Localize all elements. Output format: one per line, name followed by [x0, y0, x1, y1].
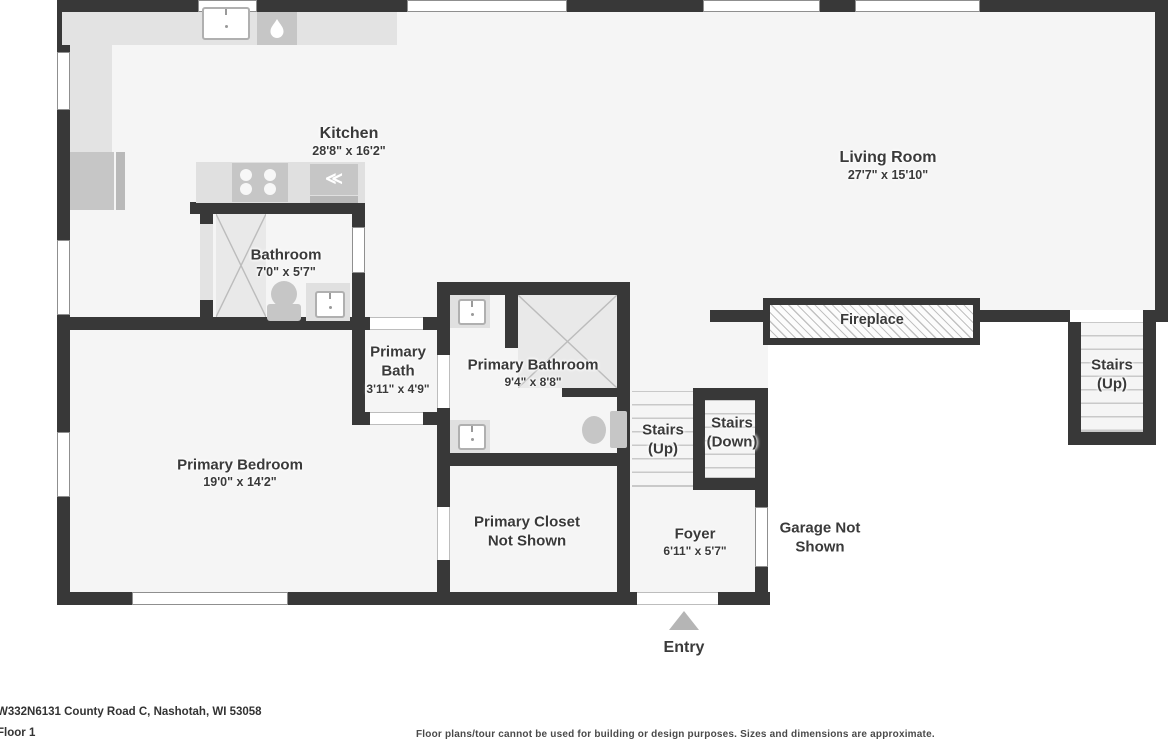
- room-label-stairs-up-right: Stairs: [1091, 357, 1133, 374]
- refrigerator-icon: [70, 152, 114, 210]
- room-label-kitchen: Kitchen: [320, 125, 379, 143]
- primary-bathroom-sink-icon: [458, 424, 486, 450]
- wall-segment: [57, 592, 132, 605]
- stairs-opening: [1070, 310, 1143, 322]
- room-label-stairs-up-mid: (Up): [648, 441, 678, 458]
- window: [57, 52, 70, 110]
- stove-icon: [232, 163, 288, 202]
- wall-segment: [1155, 0, 1168, 322]
- room-label-stairs-down: Stairs: [711, 415, 753, 432]
- wall-segment: [57, 315, 70, 432]
- wall-segment: [288, 592, 637, 605]
- primary-toilet-icon: [582, 416, 606, 444]
- primary-bathroom-sink-icon: [458, 299, 486, 325]
- wall-segment: [505, 295, 518, 348]
- door-leaf: [200, 224, 213, 300]
- room-label-primary-bathroom: Primary Bathroom: [468, 357, 599, 374]
- toilet-icon: [267, 304, 301, 321]
- window: [132, 592, 288, 605]
- entry-door-opening: [637, 592, 718, 605]
- room-label-garage: Shown: [795, 539, 844, 556]
- door-opening: [437, 355, 450, 408]
- wall-segment: [437, 560, 450, 605]
- window: [352, 227, 365, 273]
- wall-segment: [257, 0, 407, 12]
- window: [407, 0, 567, 12]
- wall-segment: [980, 0, 1168, 12]
- wall-segment: [62, 0, 198, 12]
- dishwasher-icon: [257, 12, 297, 45]
- address-text: W332N6131 County Road C, Nashotah, WI 53…: [0, 706, 262, 718]
- room-label-primary-bath: Bath: [381, 363, 414, 380]
- wall-segment: [190, 202, 365, 214]
- entry-arrow-icon: [669, 611, 699, 630]
- wall-segment: [567, 0, 703, 12]
- room-label-primary-closet: Not Shown: [488, 533, 566, 550]
- window: [703, 0, 820, 12]
- room-dims-primary-bath: 3'11" x 4'9": [366, 382, 429, 396]
- stove-burner-icon: [240, 169, 252, 181]
- room-dims-living-room: 27'7" x 15'10": [848, 168, 928, 182]
- room-label-primary-bath: Primary: [370, 344, 426, 361]
- wall-segment: [693, 388, 705, 490]
- room-label-primary-bedroom: Primary Bedroom: [177, 457, 303, 474]
- room-label-stairs-down: (Down): [707, 434, 758, 451]
- room-dims-kitchen: 28'8" x 16'2": [312, 144, 385, 158]
- wall-segment: [200, 202, 213, 224]
- room-label-primary-closet: Primary Closet: [474, 514, 580, 531]
- wall-segment: [352, 317, 365, 425]
- floor-label: Floor 1: [0, 727, 35, 739]
- wall-segment: [437, 453, 630, 466]
- wall-segment: [437, 282, 450, 355]
- kitchen-sink-icon: [202, 7, 250, 40]
- fireplace-label: Fireplace: [840, 312, 904, 328]
- stairs-up-steps: [632, 391, 693, 487]
- garage-door-opening: [755, 507, 768, 567]
- window: [57, 432, 70, 497]
- room-label-garage: Garage Not: [780, 520, 861, 537]
- room-label-stairs-up-mid: Stairs: [642, 422, 684, 439]
- wall-segment: [1068, 322, 1081, 445]
- room-label-stairs-up-right: (Up): [1097, 376, 1127, 393]
- wall-segment: [352, 273, 365, 330]
- window: [855, 0, 980, 12]
- room-dims-bathroom: 7'0" x 5'7": [256, 265, 316, 279]
- microwave-icon: ≪: [310, 164, 358, 195]
- wall-segment: [755, 400, 768, 507]
- room-label-foyer: Foyer: [675, 526, 716, 543]
- entry-label: Entry: [664, 639, 705, 657]
- wall-segment: [57, 497, 70, 605]
- wall-segment: [755, 567, 768, 605]
- wall-segment: [352, 412, 370, 425]
- wall-segment: [1143, 310, 1168, 322]
- stove-burner-icon: [264, 183, 276, 195]
- wall-segment: [200, 300, 213, 322]
- wall-segment: [975, 310, 1070, 322]
- primary-toilet-tank-icon: [610, 411, 627, 448]
- room-dims-primary-bedroom: 19'0" x 14'2": [203, 475, 276, 489]
- refrigerator-door-icon: [116, 152, 125, 210]
- stove-burner-icon: [240, 183, 252, 195]
- wall-segment: [352, 202, 365, 227]
- door-opening: [437, 507, 450, 560]
- wall-segment: [1143, 322, 1156, 445]
- room-label-living-room: Living Room: [840, 149, 937, 167]
- disclaimer-text: Floor plans/tour cannot be used for buil…: [416, 729, 935, 740]
- water-drop-icon: [257, 12, 297, 45]
- wall-segment: [437, 282, 630, 295]
- room-dims-foyer: 6'11" x 5'7": [663, 544, 726, 558]
- room-dims-primary-bathroom: 9'4" x 8'8": [504, 375, 561, 389]
- microwave-shelf: [310, 196, 358, 203]
- room-label-bathroom: Bathroom: [251, 247, 322, 264]
- wall-segment: [820, 0, 855, 12]
- bathroom-sink-icon: [315, 291, 345, 318]
- door-opening: [370, 317, 423, 330]
- wall-segment: [1068, 432, 1156, 445]
- stove-burner-icon: [264, 169, 276, 181]
- wall-segment: [57, 110, 70, 240]
- window: [57, 240, 70, 315]
- door-opening: [370, 412, 423, 425]
- kitchen-counter-left: [70, 45, 112, 152]
- floorplan-canvas: ≪ Kitchen 28'8" x 16'2" Living Room 27'7…: [0, 0, 1170, 741]
